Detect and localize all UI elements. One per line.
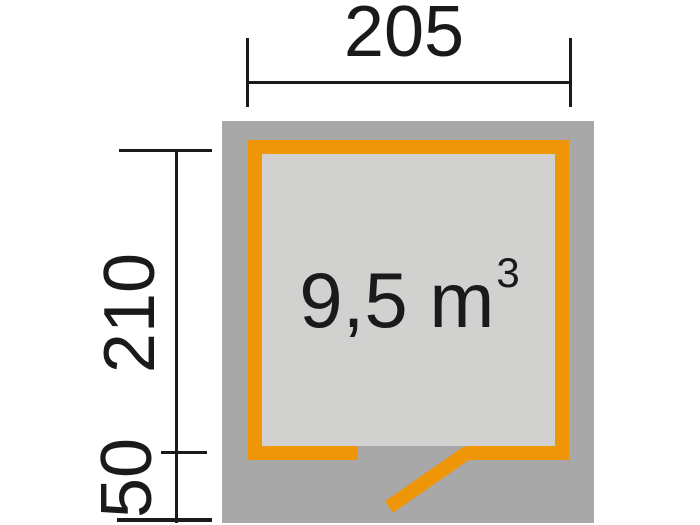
floor-plan-canvas: 9,5 m3 205 210 50 [0,0,700,525]
dimension-overhang-label: 50 [91,438,163,518]
dimension-depth-tick-bottom [117,518,212,522]
dimension-width-label: 205 [304,0,504,68]
volume-label: 9,5 m3 [262,154,555,446]
dimension-depth-label: 210 [94,253,166,373]
dimension-depth-tick-top [119,149,212,152]
dimension-width-tick-right [569,38,572,107]
dimension-width-line [247,81,572,84]
door-opening [358,446,466,460]
dimension-depth-tick-middle [161,451,207,454]
dimension-width-tick-left [246,38,249,107]
volume-superscript: 3 [496,252,519,294]
volume-value: 9,5 m [299,261,494,339]
dimension-depth-line [175,149,178,523]
